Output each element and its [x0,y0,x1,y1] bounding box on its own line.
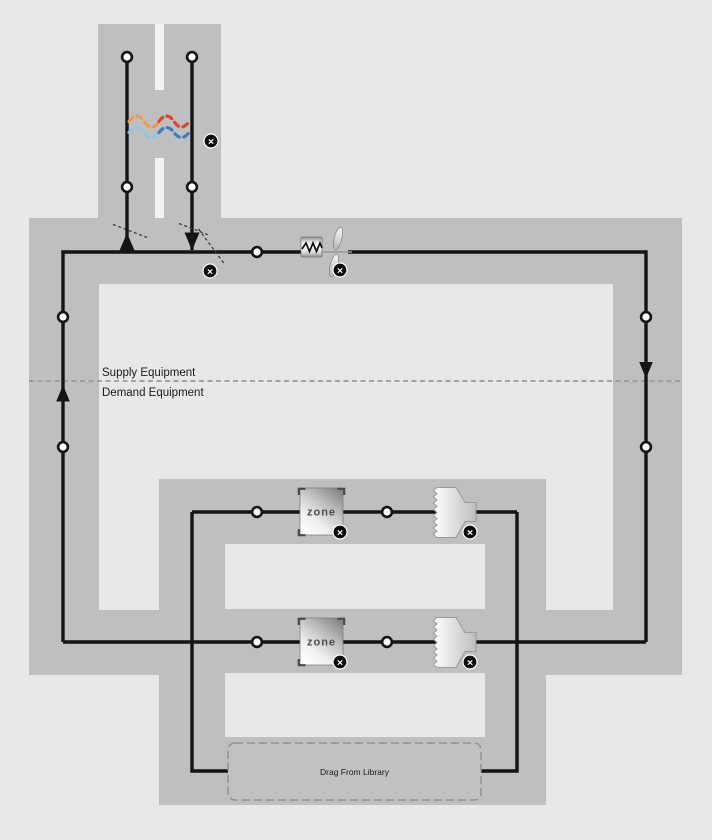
outdoor-air-inlet-node[interactable] [187,52,197,62]
delete-button-zone-2[interactable]: × [333,655,347,669]
relief-node[interactable] [122,182,132,192]
zone-label: zone [307,507,336,519]
supply-outlet-node[interactable] [641,312,651,322]
delete-icon: × [467,527,473,539]
delete-icon: × [337,657,343,669]
branch2-return-node[interactable] [252,637,262,647]
delete-button-terminal-1[interactable]: × [463,525,477,539]
supply-equipment-label: Supply Equipment [102,367,196,379]
branch1-supply-node[interactable] [382,507,392,517]
demand-inner-area-1 [225,544,485,609]
mixed-air-node[interactable] [252,247,262,257]
demand-outlet-node[interactable] [58,442,68,452]
heating-coil-icon[interactable] [301,237,322,257]
demand-inner-area-2 [225,673,485,737]
delete-icon: × [208,136,214,148]
demand-inlet-node[interactable] [641,442,651,452]
delete-button-fan[interactable]: × [333,263,347,277]
delete-button-zone-1[interactable]: × [333,525,347,539]
delete-icon: × [337,527,343,539]
supply-inlet-node[interactable] [58,312,68,322]
outdoor-air-node[interactable] [187,182,197,192]
delete-button-outdoor-air-system[interactable]: × [203,264,217,278]
outdoor-air-duct-slot-bottom [155,158,164,218]
drop-zone-label: Drag From Library [320,767,390,777]
relief-outlet-node[interactable] [122,52,132,62]
outdoor-air-duct-slot-top [155,24,164,90]
branch2-supply-node[interactable] [382,637,392,647]
delete-button-heat-exchanger[interactable]: × [204,134,218,148]
delete-icon: × [467,657,473,669]
demand-equipment-label: Demand Equipment [102,387,204,399]
hvac-loop-canvas: Supply Equipment Demand Equipment [0,0,712,835]
branch1-return-node[interactable] [252,507,262,517]
delete-icon: × [207,266,213,278]
delete-button-terminal-2[interactable]: × [463,655,477,669]
delete-icon: × [337,265,343,277]
zone-label: zone [307,637,336,649]
library-drop-zone[interactable]: Drag From Library [228,743,481,800]
